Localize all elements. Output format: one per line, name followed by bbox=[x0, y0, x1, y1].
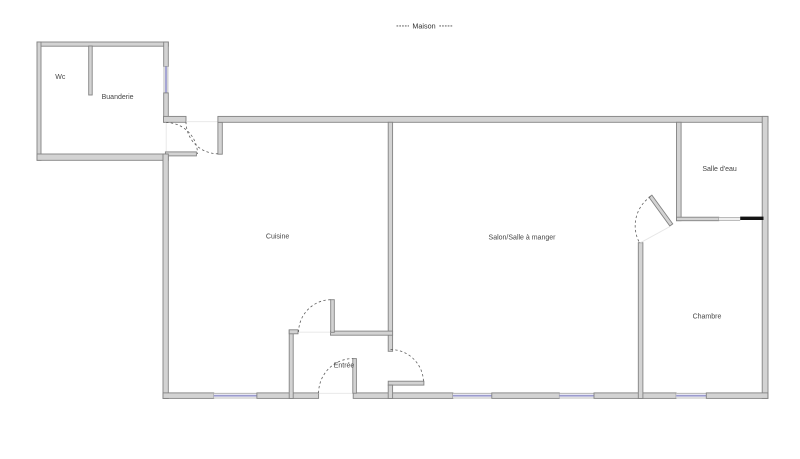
svg-text:Buanderie: Buanderie bbox=[102, 94, 134, 101]
svg-text:Chambre: Chambre bbox=[693, 313, 722, 320]
svg-text:Maison: Maison bbox=[412, 22, 435, 31]
svg-text:Entrée: Entrée bbox=[334, 362, 355, 369]
svg-text:Salon/Salle à manger: Salon/Salle à manger bbox=[489, 234, 557, 241]
svg-text:Cuisine: Cuisine bbox=[266, 233, 289, 240]
svg-text:Wc: Wc bbox=[55, 74, 66, 81]
svg-text:Salle d'eau: Salle d'eau bbox=[702, 166, 737, 173]
